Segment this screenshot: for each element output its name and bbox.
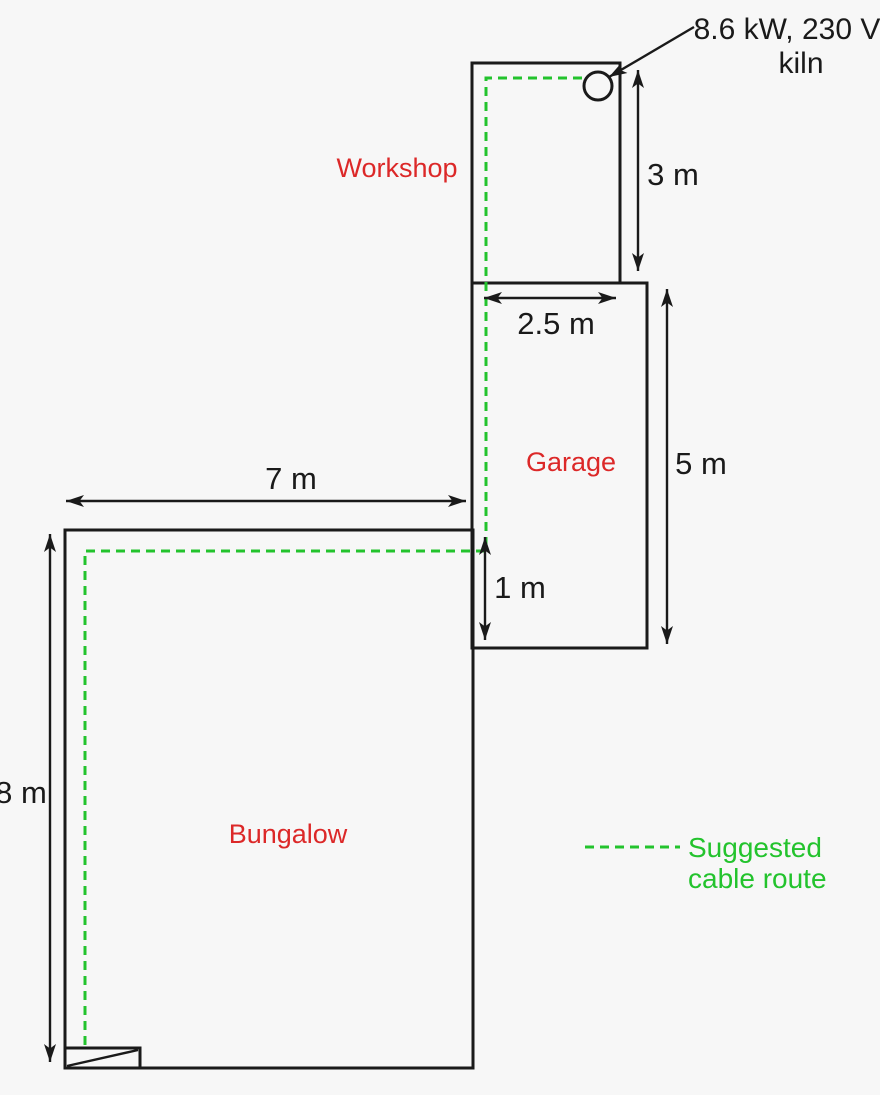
workshop-outline: [472, 63, 620, 283]
kiln-pointer-arrow: [609, 27, 694, 77]
legend-label-line1: Suggested: [688, 832, 822, 863]
bungalow-outline: [65, 530, 473, 1068]
legend-label-line2: cable route: [688, 863, 827, 894]
dimension-labels: 7 m 8 m 3 m 2.5 m 5 m 1 m: [0, 157, 727, 810]
meter-box-diagonal: [67, 1050, 138, 1066]
dim-overlap-label: 1 m: [494, 570, 546, 605]
legend: Suggested cable route: [585, 832, 827, 894]
kiln-rating-label: 8.6 kW, 230 V: [694, 13, 880, 46]
cable-route-line: [85, 78, 586, 1045]
floor-plan-page: 7 m 8 m 3 m 2.5 m 5 m 1 m Workshop Garag…: [0, 0, 880, 1095]
floor-plan-diagram: 7 m 8 m 3 m 2.5 m 5 m 1 m Workshop Garag…: [0, 0, 880, 1095]
kiln-callout: 8.6 kW, 230 V kiln: [694, 13, 880, 80]
garage-label: Garage: [526, 447, 616, 477]
bungalow-label: Bungalow: [229, 819, 348, 849]
dim-bungalow-height-label: 8 m: [0, 775, 47, 810]
dim-garage-height-label: 5 m: [675, 446, 727, 481]
dimension-arrows: [50, 70, 667, 1062]
dim-workshop-height-label: 3 m: [647, 157, 699, 192]
kiln-name-label: kiln: [778, 47, 823, 80]
dim-workshop-width-label: 2.5 m: [517, 306, 595, 341]
building-outlines: [65, 63, 647, 1068]
dim-bungalow-width-label: 7 m: [265, 461, 317, 496]
kiln-circle: [584, 72, 612, 100]
workshop-label: Workshop: [336, 153, 457, 183]
